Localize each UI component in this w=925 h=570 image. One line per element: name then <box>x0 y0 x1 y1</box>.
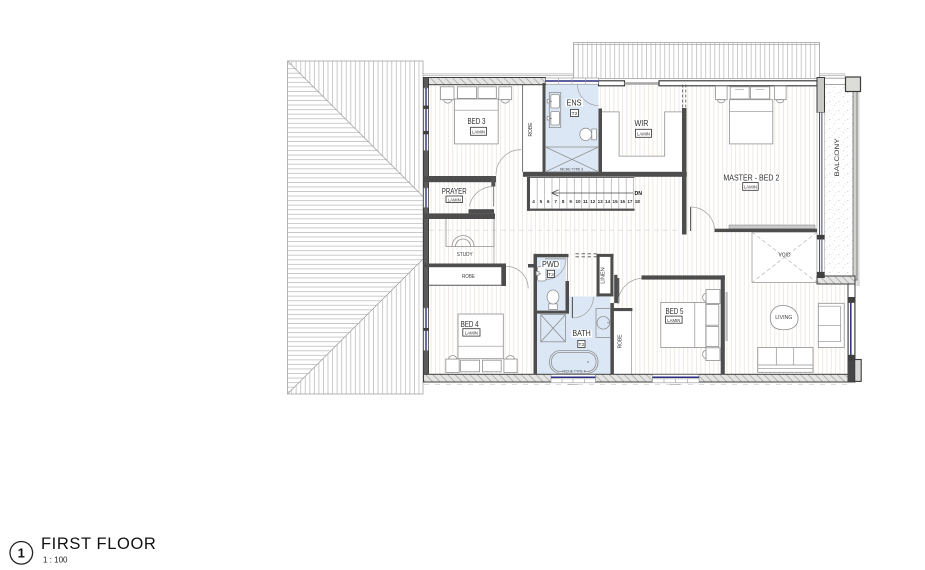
svg-text:T2: T2 <box>572 111 578 116</box>
svg-text:18: 18 <box>635 199 641 204</box>
svg-text:NICHE TYPE 4: NICHE TYPE 4 <box>562 369 585 373</box>
svg-text:1: 1 <box>18 545 25 560</box>
svg-text:LAMIN: LAMIN <box>472 130 485 135</box>
svg-text:T2: T2 <box>548 272 554 277</box>
svg-text:DN: DN <box>635 191 643 197</box>
svg-text:11: 11 <box>583 199 588 204</box>
svg-text:LIVING: LIVING <box>775 315 792 321</box>
svg-text:WIR: WIR <box>635 119 649 128</box>
svg-text:9: 9 <box>569 199 572 204</box>
svg-text:8: 8 <box>562 199 565 204</box>
svg-text:MASTER - BED 2: MASTER - BED 2 <box>723 173 779 182</box>
svg-text:13: 13 <box>598 199 604 204</box>
svg-text:16: 16 <box>620 199 626 204</box>
svg-text:BED 3: BED 3 <box>468 117 486 126</box>
svg-text:FIRST FLOOR: FIRST FLOOR <box>41 535 156 553</box>
svg-text:7: 7 <box>554 199 557 204</box>
svg-text:BED 4: BED 4 <box>461 320 479 329</box>
svg-text:BED 5: BED 5 <box>666 307 684 316</box>
svg-text:15: 15 <box>613 199 619 204</box>
svg-text:ROBE: ROBE <box>617 334 623 348</box>
svg-text:LAMIN: LAMIN <box>744 185 757 190</box>
svg-text:LAMIN: LAMIN <box>448 197 461 202</box>
svg-text:PRAYER: PRAYER <box>442 187 467 196</box>
svg-text:T2: T2 <box>578 342 584 347</box>
svg-text:LAMIN: LAMIN <box>465 331 478 336</box>
svg-text:4: 4 <box>532 199 535 204</box>
svg-text:LAMIN: LAMIN <box>637 132 650 137</box>
svg-text:ROBE: ROBE <box>462 274 475 280</box>
svg-text:NICHE TYPE 3: NICHE TYPE 3 <box>560 167 583 171</box>
svg-text:VOID: VOID <box>779 253 791 259</box>
svg-text:14: 14 <box>605 199 611 204</box>
svg-text:STUDY: STUDY <box>457 252 473 258</box>
svg-text:LINEN: LINEN <box>600 267 606 283</box>
svg-text:17: 17 <box>627 199 633 204</box>
svg-text:BALCONY: BALCONY <box>834 138 841 177</box>
svg-text:1 : 100: 1 : 100 <box>43 556 68 565</box>
svg-text:PWD: PWD <box>542 260 559 269</box>
svg-text:10: 10 <box>575 199 581 204</box>
svg-text:BATH: BATH <box>572 329 591 338</box>
svg-text:ROBE: ROBE <box>528 122 534 136</box>
svg-text:LAMIN: LAMIN <box>667 318 680 323</box>
svg-text:12: 12 <box>590 199 596 204</box>
svg-text:6: 6 <box>547 199 550 204</box>
svg-text:ENS: ENS <box>567 98 582 107</box>
svg-text:NICHE TYPE 2: NICHE TYPE 2 <box>534 317 538 340</box>
svg-text:5: 5 <box>540 199 543 204</box>
